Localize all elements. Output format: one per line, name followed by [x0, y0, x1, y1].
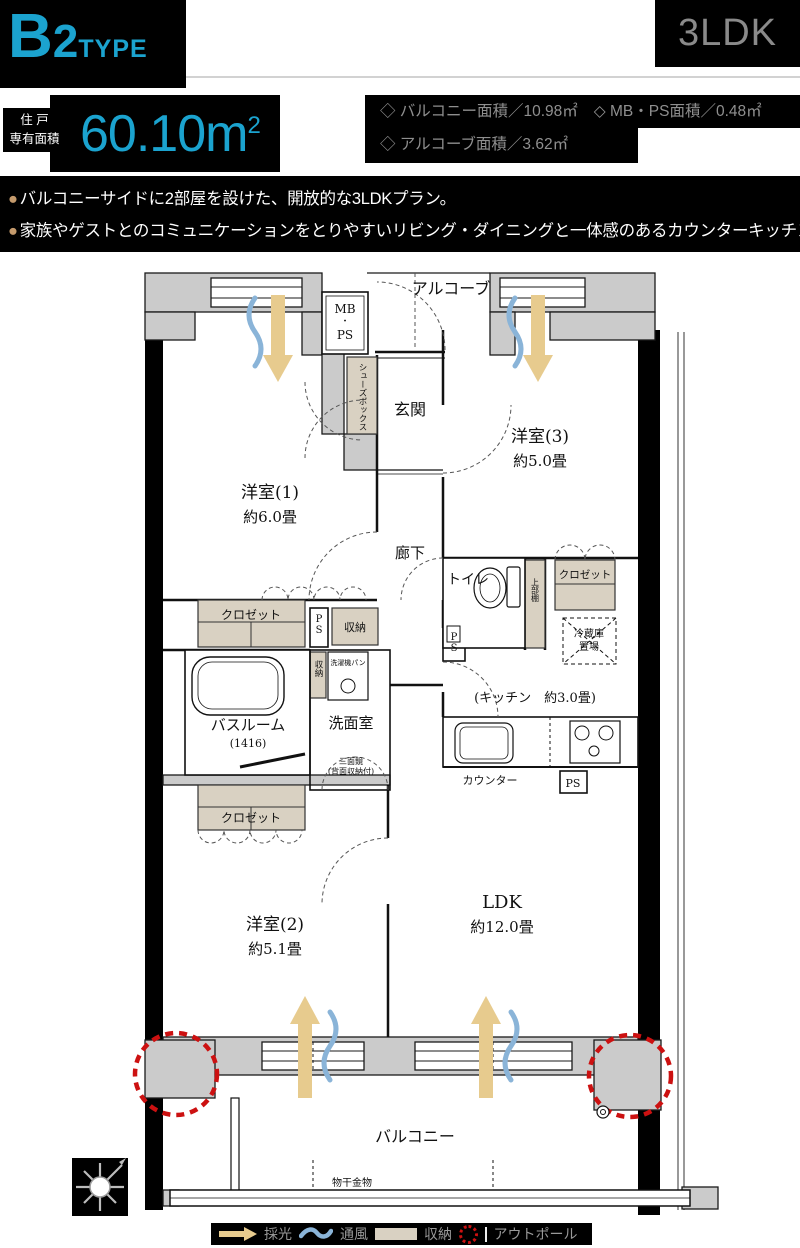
label-fridge2: 置場 — [579, 640, 599, 653]
area-label-line2: 専有面積 — [3, 130, 66, 149]
balcony-area: ◇ バルコニー面積／10.98㎡ — [380, 103, 578, 120]
mbps-label-1: MB — [334, 302, 355, 316]
label-upper-shelf: 上部棚 — [531, 578, 540, 603]
label-bathroom: バスルーム — [211, 716, 286, 734]
ventilation-legend-icon — [299, 1227, 333, 1241]
layout-label: 3LDK — [678, 12, 777, 55]
label-bathroom-size: (1416) — [230, 737, 267, 750]
layout-box: 3LDK — [655, 0, 800, 67]
label-ldk-size: 約12.0畳 — [470, 918, 533, 936]
area-value: 60.10m2 — [80, 104, 260, 164]
column-right — [594, 1040, 661, 1110]
label-closet3: クロゼット — [559, 569, 612, 581]
type-code: B2 — [8, 2, 78, 71]
daylight-legend-icon — [219, 1227, 257, 1241]
fridge-space — [563, 618, 616, 664]
feature-item: ●家族やゲストとのコミュニケーションをとりやすいリビング・ダイニングと一体感のあ… — [8, 215, 800, 247]
label-ldk: LDK — [482, 892, 522, 913]
label-ps-1: PS — [314, 614, 325, 636]
label-hallway: 廊下 — [395, 544, 425, 562]
label-fridge1: 冷蔵庫 — [574, 627, 604, 640]
label-ps-2: PS — [449, 632, 460, 654]
alcove-area: ◇ アルコーブ面積／3.62㎡ — [380, 136, 568, 153]
legend-ventilation-label: 通風 — [340, 1224, 368, 1244]
mbps-label-2: ・ — [340, 317, 349, 327]
upper-shelf-strip — [525, 560, 545, 648]
label-kitchen: (キッチン 約3.0畳) — [474, 691, 596, 706]
closet-room3 — [555, 560, 615, 610]
type-code-text: B2 — [8, 2, 78, 71]
type-code-box: B2TYPE — [0, 0, 186, 88]
label-mirror2: (背面収納付) — [328, 766, 374, 776]
label-mirror1: 三面鏡 — [339, 756, 363, 766]
details-line2: ◇ アルコーブ面積／3.62㎡ — [380, 128, 800, 161]
label-ps-counter: PS — [566, 777, 581, 790]
label-washroom: 洗面室 — [328, 714, 373, 732]
mbps-area: ◇ MB・PS面積／0.48㎡ — [594, 103, 762, 120]
compass-icon — [72, 1158, 128, 1216]
washer-pan: 洗濯機パン — [328, 652, 368, 700]
legend-bar: 採光 通風 収納 アウトポール — [211, 1223, 592, 1245]
legend-storage-label: 収納 — [424, 1224, 452, 1244]
bathtub — [192, 657, 284, 715]
label-room1-size: 約6.0畳 — [243, 508, 297, 526]
floorplan-page: B2TYPE 3LDK 60.10m2 住 戸 専有面積 ◇ バルコニー面積／1… — [0, 0, 800, 1248]
mbps-label-3: PS — [337, 328, 353, 342]
balcony-faucet — [597, 1106, 609, 1118]
label-shoes-box: シューズボックス — [357, 363, 367, 431]
wall-left-bar-lower — [145, 1098, 163, 1210]
label-room1: 洋室(1) — [241, 483, 299, 503]
legend-daylight-label: 採光 — [264, 1224, 292, 1244]
floorplan-drawing: MB ・ PS 洗濯機パン — [70, 262, 720, 1218]
area-label-box: 住 戸 専有面積 — [3, 108, 66, 152]
outpole-legend-icon — [459, 1225, 478, 1244]
bullet-icon: ● — [8, 222, 18, 240]
details-line1: ◇ バルコニー面積／10.98㎡◇ MB・PS面積／0.48㎡ — [380, 95, 800, 128]
washer-pan-label: 洗濯機パン — [330, 658, 365, 667]
label-balcony: バルコニー — [375, 1127, 455, 1146]
kitchen-counter — [443, 717, 638, 767]
wall-left-bar — [145, 335, 163, 1040]
window-ldk-bottom — [415, 1042, 572, 1070]
area-label-line1: 住 戸 — [3, 111, 66, 130]
label-room2: 洋室(2) — [246, 915, 304, 935]
column-left — [145, 1040, 215, 1098]
balcony — [170, 1098, 690, 1206]
bathroom — [185, 650, 310, 775]
label-closet2: クロゼット — [221, 811, 281, 825]
details-text: ◇ バルコニー面積／10.98㎡◇ MB・PS面積／0.48㎡ ◇ アルコーブ面… — [380, 95, 800, 163]
label-storage2: 収納 — [313, 659, 323, 678]
window-room2-bottom — [262, 1042, 364, 1070]
area-sup: 2 — [247, 112, 259, 139]
label-room3: 洋室(3) — [511, 427, 569, 447]
label-counter: カウンター — [463, 774, 518, 787]
kitchen-sink — [455, 723, 513, 763]
label-room2-size: 約5.1畳 — [248, 940, 302, 958]
window-room1-top — [211, 278, 302, 307]
legend-outpole-label: アウトポール — [494, 1224, 578, 1244]
label-room3-size: 約5.0畳 — [513, 452, 567, 470]
label-genkan: 玄関 — [394, 400, 426, 419]
feature-bullets-band: ●バルコニーサイドに2部屋を設けた、開放的な3LDKプラン。 ●家族やゲストとの… — [0, 176, 800, 252]
area-value-box: 60.10m2 — [50, 95, 280, 172]
bullet-icon: ● — [8, 190, 18, 208]
storage-legend-swatch — [375, 1228, 417, 1240]
mbps-box: MB ・ PS — [322, 292, 368, 354]
type-suffix: TYPE — [78, 35, 147, 63]
label-toilet: トイレ — [447, 572, 489, 588]
label-closet1: クロゼット — [221, 608, 281, 622]
toilet-tank — [507, 567, 520, 607]
stove — [570, 721, 620, 763]
feature-item: ●バルコニーサイドに2部屋を設けた、開放的な3LDKプラン。 — [8, 183, 800, 215]
legend-divider — [485, 1227, 487, 1242]
label-laundry: 物干金物 — [332, 1176, 372, 1189]
label-alcove: アルコーブ — [412, 279, 491, 298]
label-storage1: 収納 — [344, 621, 366, 634]
